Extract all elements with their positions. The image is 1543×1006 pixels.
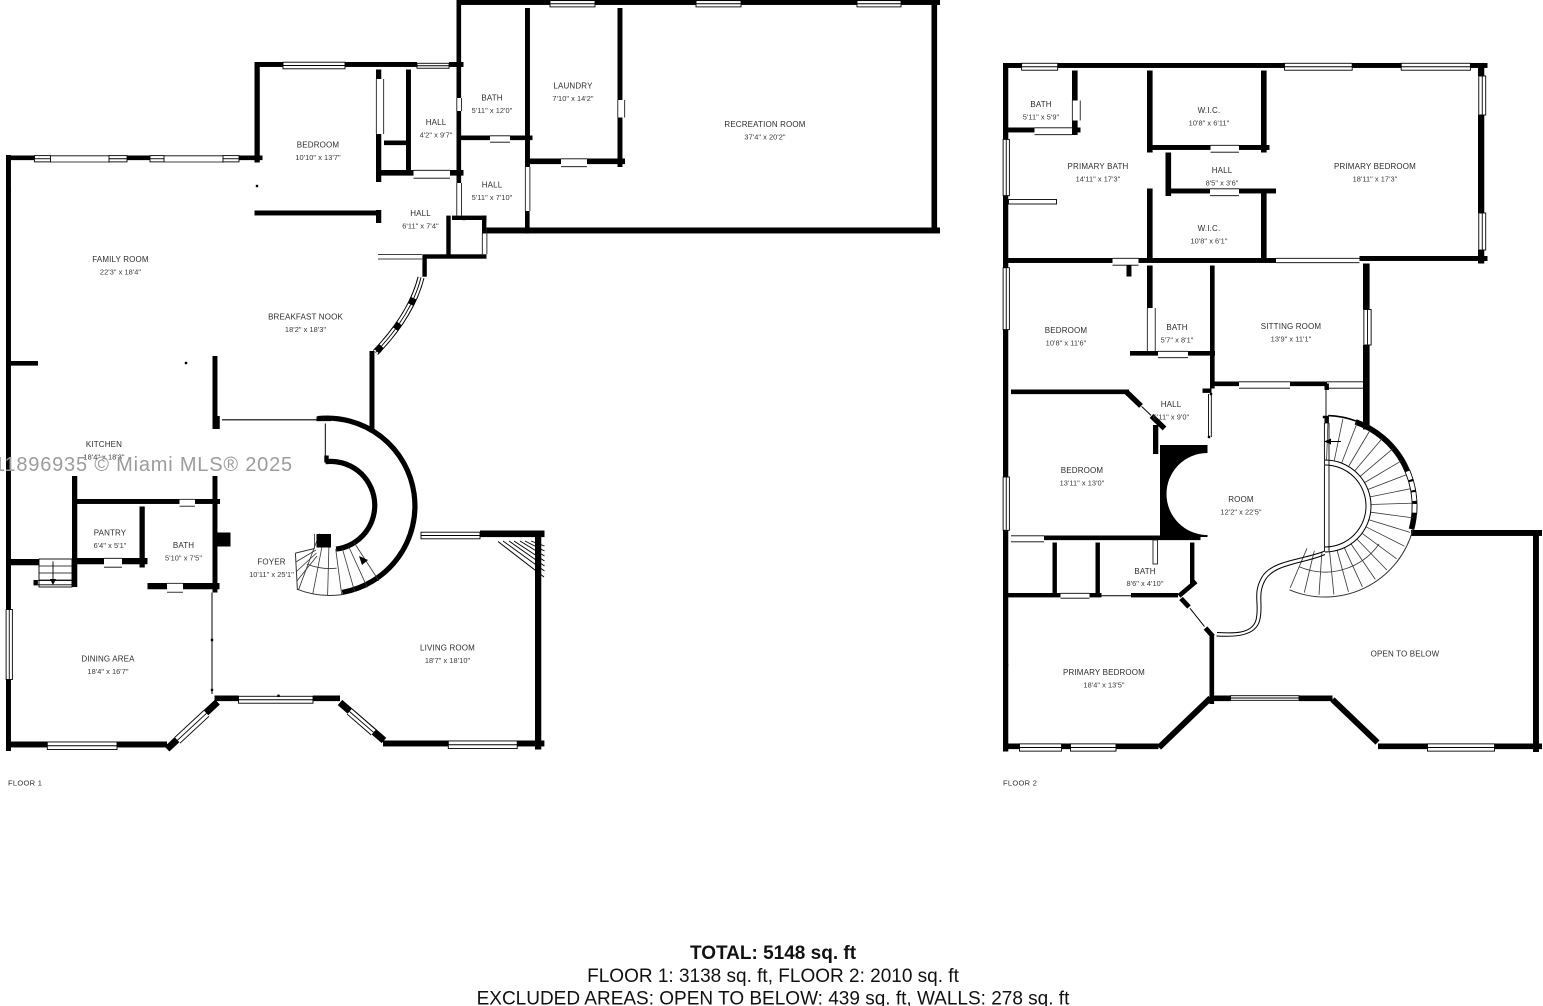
- svg-text:DINING AREA: DINING AREA: [81, 655, 135, 664]
- svg-text:BEDROOM: BEDROOM: [1061, 466, 1104, 475]
- svg-text:RECREATION ROOM: RECREATION ROOM: [724, 120, 805, 129]
- svg-text:BATH: BATH: [1166, 323, 1187, 332]
- svg-text:HALL: HALL: [410, 209, 431, 218]
- svg-text:PRIMARY BEDROOM: PRIMARY BEDROOM: [1063, 668, 1145, 677]
- svg-text:37'4" x 20'2": 37'4" x 20'2": [744, 133, 786, 142]
- svg-text:FLOOR 1: 3138 sq. ft, FLOOR 2:: FLOOR 1: 3138 sq. ft, FLOOR 2: 2010 sq. …: [587, 966, 959, 987]
- svg-text:PANTRY: PANTRY: [94, 529, 127, 538]
- svg-text:BATH: BATH: [173, 541, 194, 550]
- svg-text:6'11" x 7'4": 6'11" x 7'4": [402, 222, 439, 231]
- svg-text:10'8" x 11'6": 10'8" x 11'6": [1046, 339, 1087, 348]
- svg-text:HALL: HALL: [1212, 166, 1233, 175]
- svg-text:BATH: BATH: [1134, 567, 1155, 576]
- svg-text:BEDROOM: BEDROOM: [1045, 326, 1088, 335]
- svg-text:W.I.C.: W.I.C.: [1198, 224, 1221, 233]
- svg-text:4'2" x 9'7": 4'2" x 9'7": [420, 131, 453, 140]
- svg-text:LIVING ROOM: LIVING ROOM: [420, 644, 475, 653]
- svg-text:SITTING ROOM: SITTING ROOM: [1261, 322, 1322, 331]
- svg-text:8'6" x 4'10": 8'6" x 4'10": [1126, 579, 1163, 588]
- svg-text:KITCHEN: KITCHEN: [86, 440, 122, 449]
- svg-text:14'11" x 17'3": 14'11" x 17'3": [1076, 175, 1121, 184]
- svg-text:5'7" x 8'1": 5'7" x 8'1": [1161, 336, 1194, 345]
- svg-text:TOTAL: 5148 sq. ft: TOTAL: 5148 sq. ft: [690, 943, 857, 964]
- svg-text:10'8" x 6'11": 10'8" x 6'11": [1189, 119, 1230, 128]
- svg-text:HALL: HALL: [482, 181, 503, 190]
- svg-text:7'10" x 14'2": 7'10" x 14'2": [552, 94, 594, 103]
- svg-text:OPEN TO BELOW: OPEN TO BELOW: [1371, 650, 1440, 659]
- svg-text:13'11" x 13'0": 13'11" x 13'0": [1060, 479, 1105, 488]
- svg-text:18'7" x 18'10": 18'7" x 18'10": [425, 656, 471, 665]
- svg-text:11896935 © Miami MLS® 2025: 11896935 © Miami MLS® 2025: [0, 454, 293, 476]
- svg-text:HALL: HALL: [1161, 400, 1182, 409]
- svg-text:10'8" x 6'1": 10'8" x 6'1": [1190, 237, 1227, 246]
- svg-text:EXCLUDED AREAS: OPEN TO BELOW:: EXCLUDED AREAS: OPEN TO BELOW: 439 sq. f…: [477, 989, 1070, 1006]
- svg-text:10'11" x 25'1": 10'11" x 25'1": [249, 570, 294, 579]
- svg-text:FLOOR 2: FLOOR 2: [1003, 779, 1037, 788]
- svg-text:BEDROOM: BEDROOM: [297, 141, 340, 150]
- svg-text:18'11" x 17'3": 18'11" x 17'3": [1353, 175, 1398, 184]
- svg-text:FAMILY ROOM: FAMILY ROOM: [92, 255, 149, 264]
- svg-text:8'5" x 3'6": 8'5" x 3'6": [1206, 179, 1239, 188]
- svg-text:18'2" x 18'3": 18'2" x 18'3": [285, 325, 327, 334]
- svg-text:BATH: BATH: [1030, 100, 1051, 109]
- svg-text:13'9" x 11'1": 13'9" x 11'1": [1271, 335, 1312, 344]
- svg-text:ROOM: ROOM: [1228, 495, 1254, 504]
- svg-text:18'4" x 16'7": 18'4" x 16'7": [87, 667, 129, 676]
- svg-text:HALL: HALL: [426, 118, 447, 127]
- svg-text:22'3" x 18'4": 22'3" x 18'4": [100, 268, 142, 277]
- svg-text:BREAKFAST NOOK: BREAKFAST NOOK: [268, 313, 343, 322]
- svg-text:18'4" x 13'5": 18'4" x 13'5": [1083, 681, 1125, 690]
- svg-text:LAUNDRY: LAUNDRY: [553, 82, 593, 91]
- svg-text:PRIMARY BEDROOM: PRIMARY BEDROOM: [1334, 162, 1416, 171]
- svg-text:6'4" x 5'1": 6'4" x 5'1": [94, 541, 127, 550]
- svg-text:5'10" x 7'5": 5'10" x 7'5": [165, 554, 202, 563]
- svg-text:FLOOR 1: FLOOR 1: [8, 779, 42, 788]
- svg-text:FOYER: FOYER: [257, 558, 285, 567]
- svg-text:BATH: BATH: [481, 94, 502, 103]
- svg-text:5'11" x 5'9": 5'11" x 5'9": [1023, 113, 1060, 122]
- svg-text:W.I.C.: W.I.C.: [1198, 106, 1221, 115]
- svg-text:5'11" x 7'10": 5'11" x 7'10": [472, 193, 513, 202]
- svg-text:12'2" x 22'5": 12'2" x 22'5": [1220, 508, 1262, 517]
- svg-text:10'10" x 13'7": 10'10" x 13'7": [295, 153, 341, 162]
- svg-text:5'11" x 12'0": 5'11" x 12'0": [472, 106, 513, 115]
- svg-text:PRIMARY BATH: PRIMARY BATH: [1068, 162, 1129, 171]
- svg-text:6'11" x 9'0": 6'11" x 9'0": [1153, 413, 1190, 422]
